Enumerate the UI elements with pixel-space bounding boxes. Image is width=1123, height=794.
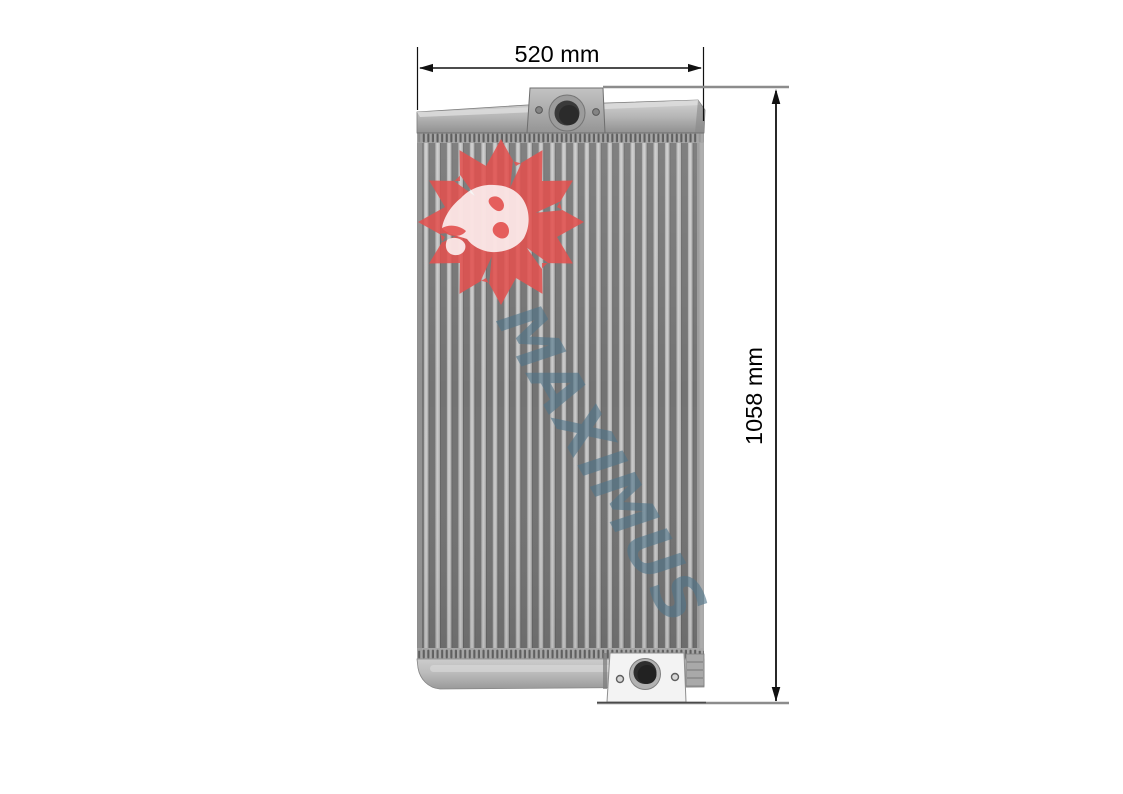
bottom-mounting-bracket [607, 653, 686, 702]
width-right-arrow [688, 64, 702, 72]
width-left-arrow [419, 64, 433, 72]
radiator-product-figure: MAXIMUS [0, 0, 1123, 794]
top-mounting-bracket [527, 88, 605, 133]
core-left-side-plate [417, 131, 422, 651]
width-dimension-label: 520 mm [515, 41, 600, 67]
product-figure-canvas: MAXIMUS [0, 0, 1123, 794]
bottom-tank-right-fitting [686, 654, 704, 686]
top-bracket-right-rivet [593, 109, 600, 116]
bottom-bracket-left-hole [617, 676, 624, 683]
height-top-arrow [772, 89, 781, 104]
height-bottom-arrow [772, 687, 781, 702]
height-dimension-label: 1058 mm [741, 347, 767, 445]
bottom-bracket-right-hole [672, 674, 679, 681]
top-bracket-left-rivet [536, 107, 543, 114]
